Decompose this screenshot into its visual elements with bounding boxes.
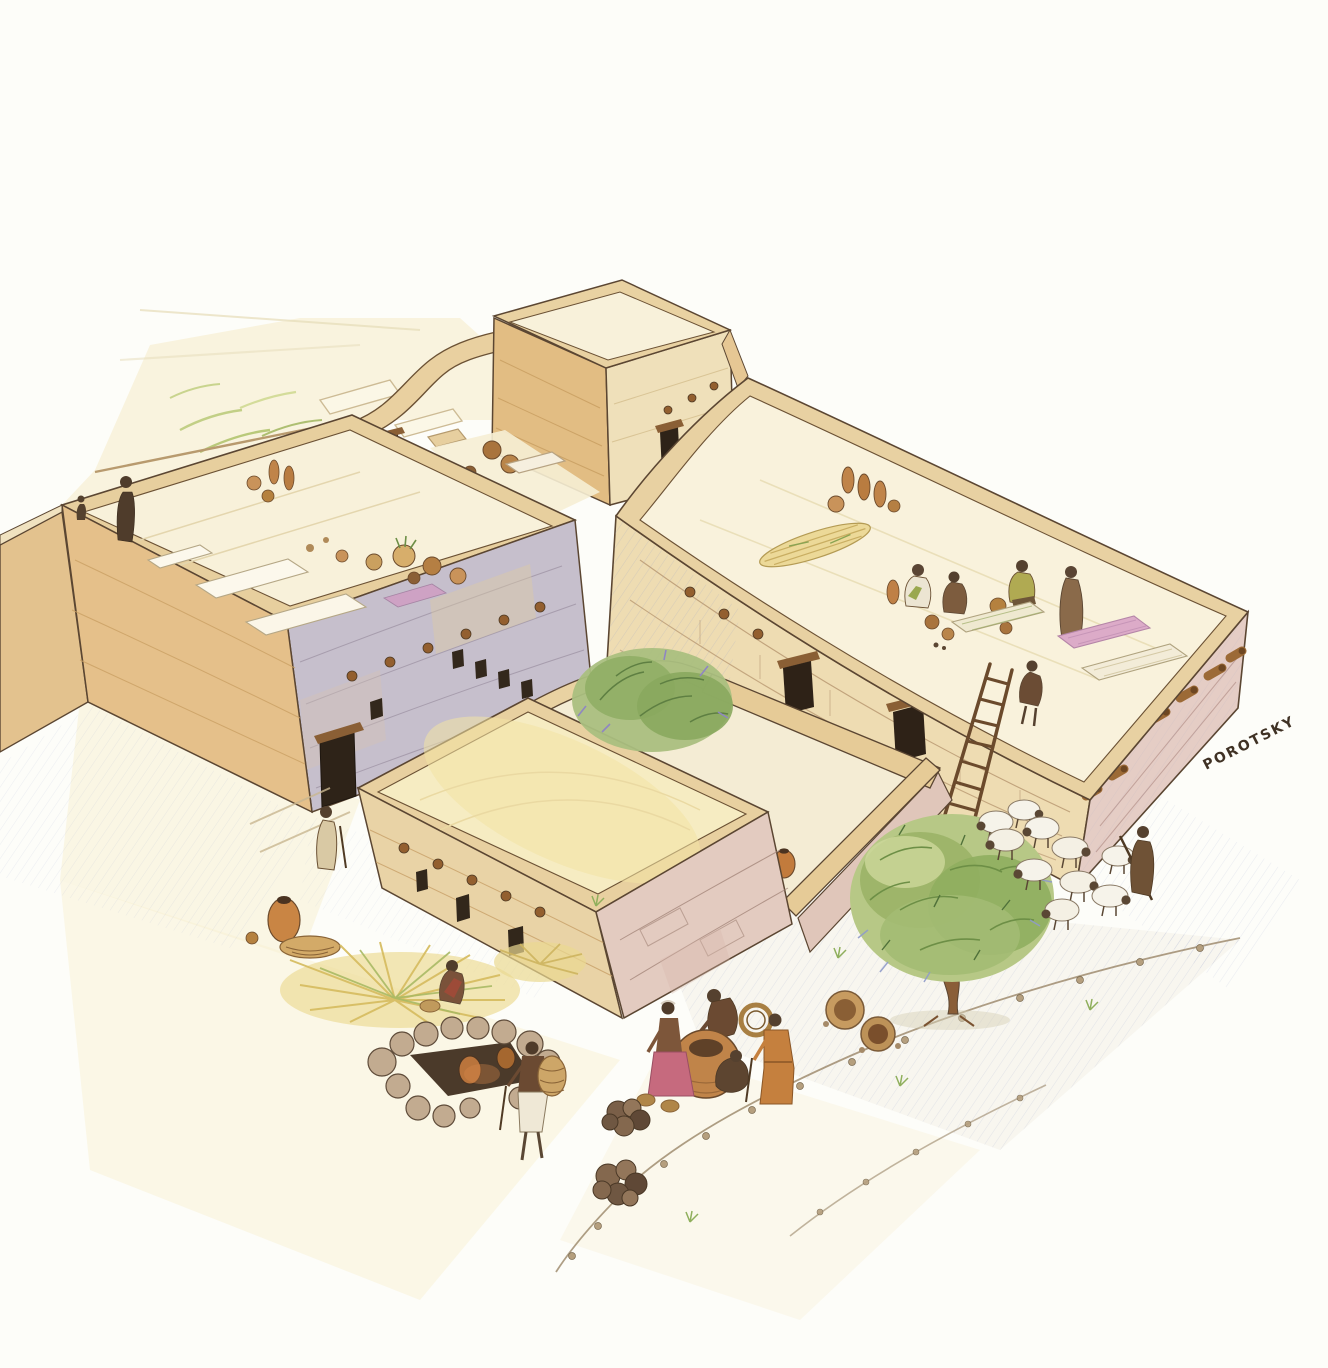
courtyard-shrub	[572, 648, 733, 752]
beam-end-icon	[753, 629, 763, 639]
beam-end-icon	[710, 382, 718, 390]
beam-end-icon	[719, 609, 729, 619]
beam-end-icon	[664, 406, 672, 414]
beam-end-icon	[688, 394, 696, 402]
left-house-door	[320, 732, 356, 807]
illustration-canvas: POROTSKY	[0, 0, 1328, 1368]
beam-end-icon	[685, 587, 695, 597]
pink-skirt	[648, 1052, 694, 1096]
village-illustration: POROTSKY	[0, 0, 1328, 1368]
